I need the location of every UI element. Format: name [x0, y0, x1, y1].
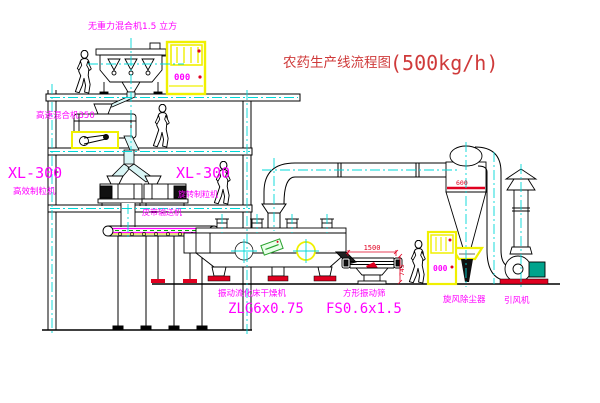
label-granulator-right-model: XL-300 — [176, 164, 230, 182]
dryer-top-dampers — [215, 219, 334, 228]
label-fan: 引风机 — [504, 295, 530, 306]
label-granulator-left-model: XL-300 — [8, 164, 62, 182]
square-vibrating-sieve — [342, 250, 402, 284]
dryer-feed-head — [184, 233, 210, 253]
cabinet-right-display: 000 — [433, 264, 448, 273]
dryer-feet — [208, 267, 336, 281]
indicator-dot-icon — [451, 266, 454, 269]
page-title: 农药生产线流程图 — [283, 55, 391, 71]
indicator-dot-icon — [198, 75, 201, 78]
exhaust-duct — [262, 163, 448, 228]
label-granulator-right-name: 旋转制粒机 — [178, 189, 218, 199]
induced-draft-fan — [500, 169, 548, 284]
label-granulator-left-name: 高效制粒机 — [13, 186, 56, 197]
control-cabinet-right: 000 — [428, 232, 456, 284]
control-cabinet-top: 000 — [167, 42, 205, 94]
cabinet-top-display: 000 — [174, 73, 190, 83]
process-flow-drawing: 000 — [0, 0, 600, 403]
worker-figure-ground — [409, 240, 425, 283]
mixer-drive-unit — [72, 132, 118, 148]
granulator-left-unit — [98, 176, 144, 206]
flow-diagram-canvas: 000 — [0, 0, 600, 403]
label-sieve-model: FS0.6x1.5 — [326, 301, 402, 317]
indicator-dot-icon — [197, 49, 200, 52]
dim-sieve-length: 1500 — [364, 244, 381, 252]
label-dryer-name: 振动流化床干燥机 — [218, 288, 287, 299]
dim-cyclone-diameter: 600 — [456, 179, 468, 187]
label-dryer-model: ZLG6x0.75 — [228, 301, 304, 317]
worker-figure-floor2 — [153, 104, 169, 147]
page-title-capacity: (500kg/h) — [390, 51, 498, 75]
fan-motor — [529, 262, 545, 277]
fan-base — [500, 279, 548, 284]
worker-figure-roof — [75, 50, 91, 93]
fluid-bed-dryer — [184, 219, 356, 281]
dim-sieve-height: 745 — [398, 264, 406, 276]
label-sieve-name: 方形振动筛 — [343, 288, 386, 299]
label-cyclone: 旋风除尘器 — [443, 294, 486, 305]
label-high-speed-mixer: 高速混合机350 — [36, 110, 95, 121]
indicator-dot-icon — [449, 239, 452, 242]
label-gravity-free-mixer: 无重力混合机1.5 立方 — [88, 20, 177, 32]
label-belt-conveyor: 皮带输送机 — [142, 207, 182, 217]
